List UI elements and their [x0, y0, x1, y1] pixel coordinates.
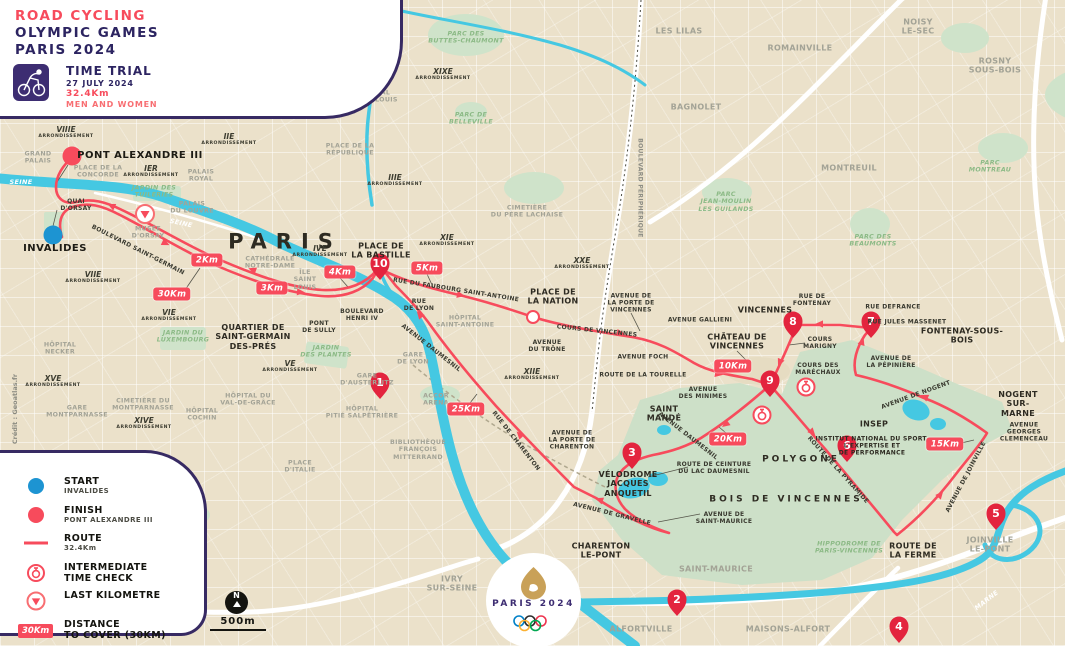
map-label: HÔPITAL SAINT-ANTOINE [436, 315, 495, 330]
map-label: AVENUE DE LA PÉPINIÈRE [866, 355, 915, 369]
distance-badge: 30Km [18, 624, 53, 638]
event-header-card: ROAD CYCLING OLYMPIC GAMES PARIS 2024 TI… [0, 0, 403, 119]
map-label: ROUTE DE LA FERME [889, 542, 937, 561]
map-label: AVENUE DE NOGENT [880, 379, 951, 411]
map-label: RUE DE FONTENAY [793, 293, 831, 307]
legend-row: STARTINVALIDES [0, 475, 204, 503]
district-label: IVEARRONDISSEMENT [292, 244, 347, 258]
map-label: SAINT-MAURICE [679, 564, 753, 573]
scale-text: 500m [210, 616, 266, 627]
legend-text: INTERMEDIATE TIME CHECK [64, 562, 148, 585]
district-label: VIIEARRONDISSEMENT [65, 270, 120, 284]
time-trial-pictogram-icon [13, 64, 49, 101]
map-label: CHÂTEAU DE VINCENNES [707, 333, 766, 352]
legend-text: DISTANCE TO COVER (30KM) [64, 619, 166, 642]
map-label: MARNE [974, 589, 1001, 612]
map-label: BOIS DE VINCENNES [709, 495, 863, 506]
north-triangle-icon [233, 601, 241, 607]
map-label: AVENUE FOCH [618, 353, 669, 360]
map-label: GARE MONTPARNASSE [46, 405, 108, 420]
map-label: PLACE DE LA NATION [528, 288, 579, 307]
map-label: BAGNOLET [671, 102, 722, 111]
legend-row: ROUTE32.4Km [0, 532, 204, 560]
legend-subtitle: INVALIDES [64, 487, 109, 495]
map-label: NOGENT SUR-MARNE [995, 390, 1042, 418]
map-label: ROUTE DE LA TOURELLE [599, 371, 686, 378]
map-label: IVRY SUR-SEINE [427, 575, 478, 594]
map-label: AVENUE DU TRÔNE [528, 339, 565, 353]
map-label: JARDIN DU LUXEMBOURG [157, 330, 210, 345]
map-label: HIPPODROME DE PARIS-VINCENNES [815, 541, 883, 556]
flame-icon [521, 567, 546, 599]
north-arrow: N [225, 591, 248, 614]
map-screenshot: 12345678910 PARISVINCENNESSAINT MANDÉCHA… [0, 0, 1065, 646]
map-label: PARC MONTREAU [969, 160, 1011, 175]
event-title-line1: OLYMPIC GAMES [15, 25, 159, 41]
map-label: SAINT MANDÉ [647, 405, 681, 424]
km-distance-marker: 10Km [714, 360, 751, 373]
map-label: AVENUE DE SAINT-MAURICE [696, 511, 752, 525]
time-check-legend-icon [18, 561, 54, 587]
map-label: GRAND PALAIS [25, 151, 52, 166]
map-label: RUE DEFRANCE [865, 303, 920, 310]
map-label: AVENUE DES MINIMES [679, 386, 728, 400]
km-distance-marker: 30Km [153, 288, 190, 301]
event-date: 27 JULY 2024 [66, 79, 134, 88]
map-label: HÔPITAL DU VAL-DE-GRÂCE [220, 393, 276, 408]
map-label: PONT ALEXANDRE III [77, 150, 203, 162]
legend-text: LAST KILOMETRE [64, 590, 161, 601]
map-label: BOULEVARD HENRI IV [340, 308, 384, 322]
sport-name: ROAD CYCLING [15, 8, 146, 24]
map-label: PALAIS DU LOUVRE [170, 201, 214, 216]
map-label: VINCENNES [738, 305, 793, 314]
map-label: INVALIDES [23, 243, 87, 255]
map-label: COURS MARIGNY [803, 336, 837, 350]
km-distance-marker: 15Km [926, 438, 963, 451]
map-label: JOINVILLE LE-PONT [967, 536, 1014, 555]
district-label: XIVEARRONDISSEMENT [116, 416, 171, 430]
map-label: AVENUE GEORGES CLEMENCEAU [1000, 421, 1048, 442]
map-label: ROUTE DE CEINTURE DU LAC DAUMESNIL [677, 461, 752, 475]
map-label: PLACE DE LA CONCORDE [74, 165, 123, 180]
map-label: PALAIS ROYAL [188, 169, 214, 184]
map-label: CIMETIÈRE DU PÈRE LACHAISE [491, 205, 563, 220]
district-label: IIEARRONDISSEMENT [201, 132, 256, 146]
district-label: XXEARRONDISSEMENT [554, 256, 609, 270]
map-label: COURS DE VINCENNES [556, 323, 637, 338]
paris-2024-logo: PARIS 2024 [486, 553, 581, 646]
finish-dot-legend-icon [18, 504, 54, 530]
district-label: XVEARRONDISSEMENT [25, 374, 80, 388]
map-label: BOULEVARD PÉRIPHÉRIQUE [636, 138, 643, 237]
map-label: HÔPITAL NECKER [44, 342, 76, 357]
map-label: SEINE [10, 179, 33, 187]
map-label: AVENUE DE LA PORTE DE VINCENNES [607, 292, 654, 313]
map-label: HÔPITAL COCHIN [186, 408, 218, 423]
district-label: XIXEARRONDISSEMENT [415, 67, 470, 81]
km-distance-marker: 3Km [256, 282, 287, 295]
map-label: AVENUE DE GRAVELLE [572, 501, 651, 527]
district-label: IERARRONDISSEMENT [123, 164, 178, 178]
map-label: COURS DES MARÉCHAUX [795, 362, 840, 376]
map-label: QUAI D'ORSAY [60, 198, 91, 212]
district-label: VEARRONDISSEMENT [262, 359, 317, 373]
map-label: JARDIN DES PLANTES [300, 345, 351, 360]
map-label: PLACE D'ITALIE [284, 460, 315, 475]
legend-text: ROUTE32.4Km [64, 533, 102, 552]
legend-row: LAST KILOMETRE [0, 589, 204, 617]
map-label: PONT DE SULLY [302, 320, 336, 334]
map-label: RUE DU FAUBOURG SAINT-ANTOINE [393, 277, 520, 304]
map-label: LES LILAS [656, 26, 703, 35]
legend-title: FINISH [64, 505, 153, 516]
km-distance-marker: 25Km [447, 403, 484, 416]
legend-title: DISTANCE TO COVER (30KM) [64, 619, 166, 642]
scale-line [210, 629, 266, 631]
map-label: BIBLIOTHÈQUE FRANÇOIS MITTERRAND [390, 439, 446, 461]
start-dot-legend-icon [18, 475, 54, 501]
north-label: N [225, 591, 248, 601]
map-label: CIMETIÈRE DU MONTPARNASSE [112, 398, 174, 413]
map-label: PARC DES BUTTES-CHAUMONT [428, 31, 503, 46]
route-line-legend-icon [18, 532, 54, 558]
map-label: PARC JEAN-MOULIN LES GUILANDS [698, 191, 753, 213]
legend-card: STARTINVALIDESFINISHPONT ALEXANDRE IIIRO… [0, 450, 207, 636]
km-distance-marker: 20Km [709, 433, 746, 446]
km-distance-marker: 4Km [324, 266, 355, 279]
map-label: MUSÉE D'ORSAY [132, 226, 165, 241]
event-name: TIME TRIAL [66, 64, 152, 78]
district-label: IIIEARRONDISSEMENT [367, 173, 422, 187]
map-label: BOULEVARD SAINT-GERMAIN [90, 223, 185, 276]
map-label: GARE DE LYON [397, 352, 429, 367]
legend-subtitle: PONT ALEXANDRE III [64, 516, 153, 524]
map-label: MAISONS-ALFORT [746, 624, 830, 633]
legend-title: LAST KILOMETRE [64, 590, 161, 601]
legend-text: STARTINVALIDES [64, 476, 109, 495]
map-label: ROSNY SOUS-BOIS [969, 57, 1021, 76]
district-label: VIEARRONDISSEMENT [141, 308, 196, 322]
map-label: AVENUE DE JOINVILLE [944, 440, 987, 513]
map-label: PLACE DE LA BASTILLE [351, 242, 411, 261]
legend-title: ROUTE [64, 533, 102, 544]
district-label: XIIEARRONDISSEMENT [504, 367, 559, 381]
last-km-legend-icon [18, 589, 54, 615]
map-label: POLYGONE [762, 455, 840, 466]
map-label: AVENUE DAUMESNIL [400, 323, 462, 374]
map-label: RUE DE LYON [404, 298, 434, 312]
event-distance: 32.4Km [66, 89, 109, 99]
map-label: FONTENAY-SOUS-BOIS [911, 327, 1014, 346]
map-label: JARDIN DES TUILERIES [132, 185, 176, 200]
map-label: ACCOR ARENA [423, 393, 449, 408]
map-label: INSEP [860, 419, 888, 428]
map-label: QUARTIER DE SAINT-GERMAIN DES-PRÉS [215, 323, 290, 351]
district-label: XIEARRONDISSEMENT [419, 233, 474, 247]
legend-row: INTERMEDIATE TIME CHECK [0, 561, 204, 589]
map-label: ROMAINVILLE [768, 43, 833, 52]
map-label: AVENUE DE LA PORTE DE CHARENTON [548, 429, 595, 450]
logo-wordmark: PARIS 2024 [486, 599, 581, 609]
map-label: INSTITUT NATIONAL DU SPORT, L'EXPERTISE … [816, 435, 929, 456]
km-distance-marker: 5Km [411, 262, 442, 275]
map-label: CATHÉDRALE NOTRE-DAME [245, 256, 295, 271]
legend-subtitle: 32.4Km [64, 544, 102, 552]
map-label: MONTREUIL [821, 163, 877, 172]
map-label: ROUTE DE LA PYRAMIDE [806, 435, 870, 505]
map-label: GARE D'AUSTERLITZ [340, 373, 394, 388]
legend-text: FINISHPONT ALEXANDRE III [64, 505, 153, 524]
event-title-line2: PARIS 2024 [15, 42, 117, 58]
map-label: ÎLE SAINT LOUIS [294, 269, 317, 291]
event-category: MEN AND WOMEN [66, 100, 157, 109]
map-label: SEINE [169, 218, 193, 230]
map-label: HÔPITAL PITIÉ SALPÊTRIÈRE [326, 406, 398, 421]
distance-box-legend-icon: 30Km [18, 618, 54, 644]
map-label: PLACE DE LA RÉPUBLIQUE [326, 143, 375, 158]
km-distance-marker: 2Km [191, 254, 222, 267]
map-label: PARC DES BEAUMONTS [849, 234, 896, 249]
olympic-rings-icon [514, 616, 546, 631]
map-label: PARIS [228, 230, 342, 255]
district-label: VIIIEARRONDISSEMENT [38, 125, 93, 139]
legend-row: FINISHPONT ALEXANDRE III [0, 504, 204, 532]
map-label: RUE JULES MASSENET [868, 318, 947, 325]
legend-title: START [64, 476, 109, 487]
map-credit: Crédit : Geoatlas.fr [11, 364, 19, 454]
map-label: VÉLODROME JACQUES ANQUETIL [599, 470, 658, 498]
scale-bar: 500m [210, 616, 266, 631]
map-label: AVENUE GALLIENI [668, 316, 732, 323]
map-label: PARC DE BELLEVILLE [449, 112, 493, 127]
map-label: RUE DE CHARENTON [491, 410, 542, 472]
map-label: ALFORTVILLE [610, 624, 673, 633]
map-label: NOISY LE-SEC [902, 18, 935, 37]
legend-row: 30KmDISTANCE TO COVER (30KM) [0, 618, 204, 646]
legend-title: INTERMEDIATE TIME CHECK [64, 562, 148, 585]
